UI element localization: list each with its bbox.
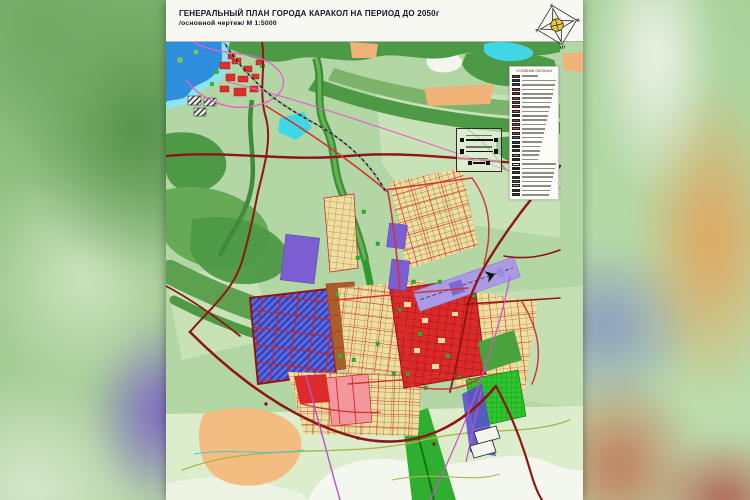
legend-label — [522, 137, 543, 139]
map-subtitle: /основной чертеж/ М 1:5000 — [179, 20, 583, 27]
legend-label — [522, 194, 549, 196]
map-legend: УСЛОВНЫЕ ОБОЗНАЧЕНИЯ — [509, 66, 559, 200]
legend-items — [512, 74, 556, 197]
legend-label — [522, 80, 556, 82]
compass-rose-icon: С В Ю З — [534, 2, 580, 48]
legend-label — [522, 146, 541, 148]
legend-label — [522, 93, 553, 95]
legend-swatch — [512, 149, 520, 152]
map-title: ГЕНЕРАЛЬНЫЙ ПЛАН ГОРОДА КАРАКОЛ НА ПЕРИО… — [179, 9, 583, 18]
legend-label — [522, 97, 552, 99]
legend-swatch — [512, 193, 520, 196]
legend-label — [522, 185, 551, 187]
legend-label — [522, 176, 553, 178]
legend-label — [522, 150, 540, 152]
legend-swatch — [512, 141, 520, 144]
legend-swatch — [512, 105, 520, 108]
legend-label — [522, 102, 551, 104]
legend-label — [522, 119, 547, 121]
legend-label — [522, 111, 549, 113]
compass-north-label: С — [550, 3, 555, 9]
legend-swatch — [512, 163, 520, 166]
legend-swatch — [512, 79, 520, 82]
legend-label — [522, 190, 550, 192]
legend-item — [512, 193, 556, 197]
legend-label — [522, 124, 546, 126]
legend-heading: УСЛОВНЫЕ ОБОЗНАЧЕНИЯ — [516, 69, 551, 73]
legend-swatch — [512, 83, 520, 86]
map-title-block: ГЕНЕРАЛЬНЫЙ ПЛАН ГОРОДА КАРАКОЛ НА ПЕРИО… — [166, 0, 583, 42]
legend-swatch — [512, 171, 520, 174]
legend-swatch — [512, 110, 520, 113]
legend-swatch — [512, 97, 520, 100]
pink-zone — [326, 374, 372, 426]
legend-swatch — [512, 176, 520, 179]
legend-swatch — [512, 123, 520, 126]
legend-swatch — [512, 184, 520, 187]
legend-label — [522, 132, 544, 134]
road-profile-row — [460, 146, 498, 153]
legend-swatch — [512, 88, 520, 91]
legend-swatch — [512, 119, 520, 122]
legend-swatch — [512, 92, 520, 95]
legend-swatch — [512, 145, 520, 148]
legend-swatch — [512, 167, 520, 170]
background-blur-left — [0, 0, 170, 500]
legend-swatch — [512, 75, 520, 78]
legend-swatch — [512, 180, 520, 183]
legend-label — [522, 128, 545, 130]
legend-label — [522, 181, 552, 183]
screenshot: ГЕНЕРАЛЬНЫЙ ПЛАН ГОРОДА КАРАКОЛ НА ПЕРИО… — [0, 0, 750, 500]
legend-label — [522, 172, 554, 174]
master-plan-document: ГЕНЕРАЛЬНЫЙ ПЛАН ГОРОДА КАРАКОЛ НА ПЕРИО… — [166, 0, 583, 500]
legend-swatch — [512, 114, 520, 117]
legend-swatch — [512, 136, 520, 139]
legend-label — [522, 75, 538, 77]
legend-label — [522, 89, 554, 91]
legend-swatch — [512, 101, 520, 104]
legend-label — [522, 154, 539, 156]
legend-label — [522, 115, 548, 117]
legend-label — [522, 141, 542, 143]
road-profile-row — [460, 158, 498, 165]
legend-label — [522, 163, 556, 165]
background-blur-right — [580, 0, 750, 500]
legend-label — [522, 84, 555, 86]
road-profiles-diagram — [456, 128, 502, 172]
legend-swatch — [512, 132, 520, 135]
legend-label — [522, 168, 555, 170]
road-profile-row — [460, 135, 498, 142]
legend-swatch — [512, 154, 520, 157]
legend-swatch — [512, 189, 520, 192]
legend-label — [522, 106, 550, 108]
north-residential-strip — [324, 194, 358, 272]
map-canvas: УСЛОВНЫЕ ОБОЗНАЧЕНИЯ — [166, 42, 583, 500]
legend-swatch — [512, 127, 520, 130]
legend-label — [522, 159, 538, 161]
legend-swatch — [512, 158, 520, 161]
